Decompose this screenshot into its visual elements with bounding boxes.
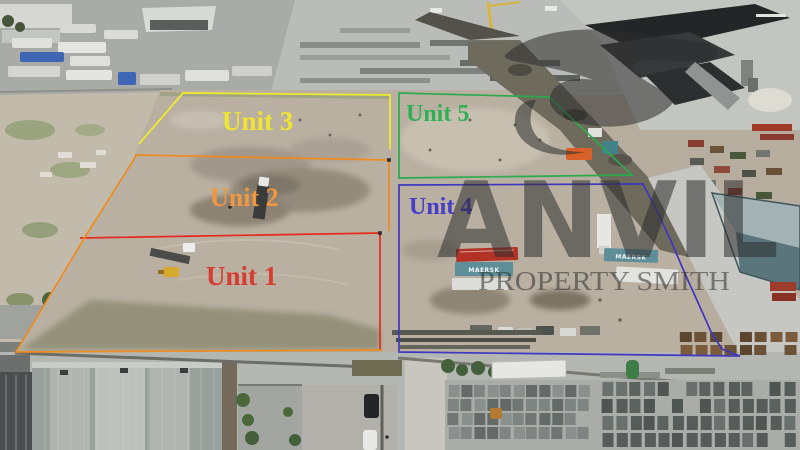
concrete-block xyxy=(696,345,708,355)
concrete-block xyxy=(513,413,524,425)
concrete-block xyxy=(686,382,697,396)
concrete-block xyxy=(578,399,589,411)
concrete-block xyxy=(713,382,724,396)
concrete-block xyxy=(631,416,642,430)
concrete-block xyxy=(729,399,740,413)
concrete-block xyxy=(512,399,523,411)
concrete-block xyxy=(680,332,692,342)
concrete-block xyxy=(475,399,486,411)
concrete-block xyxy=(743,416,754,430)
concrete-block xyxy=(552,413,563,425)
concrete-block xyxy=(742,433,753,447)
concrete-block xyxy=(755,332,767,342)
concrete-block xyxy=(617,399,628,413)
concrete-block xyxy=(462,413,473,425)
concrete-block xyxy=(754,345,766,355)
concrete-block xyxy=(539,385,550,397)
concrete-block xyxy=(500,427,511,439)
concrete-block xyxy=(771,332,783,342)
concrete-block xyxy=(700,399,711,413)
concrete-block xyxy=(785,382,796,396)
concrete-block xyxy=(785,433,796,447)
concrete-block xyxy=(784,416,795,430)
sand-pile xyxy=(748,88,792,112)
concrete-block xyxy=(539,427,550,439)
courtyard xyxy=(236,385,302,450)
bus-depot xyxy=(0,0,295,95)
concrete-block xyxy=(687,433,698,447)
concrete-block xyxy=(449,427,460,439)
site-cabin xyxy=(602,141,618,154)
concrete-block xyxy=(729,416,740,430)
concrete-block xyxy=(514,427,525,439)
warehouse-roof xyxy=(32,362,237,450)
concrete-block xyxy=(500,385,511,397)
concrete-block xyxy=(757,399,768,413)
concrete-block xyxy=(714,399,725,413)
watermark-tagline: PROPERTY SMITH xyxy=(478,266,730,296)
concrete-block xyxy=(786,332,798,342)
watermark-brand: ANVIL xyxy=(437,160,779,282)
unit-label-unit-3: Unit 3 xyxy=(222,106,293,136)
concrete-block xyxy=(474,427,485,439)
concrete-block xyxy=(673,416,684,430)
concrete-block xyxy=(659,433,670,447)
concrete-block xyxy=(539,413,550,425)
concrete-block xyxy=(729,433,740,447)
parking-area xyxy=(302,385,397,450)
concrete-block xyxy=(565,385,576,397)
white-car xyxy=(363,430,377,450)
concrete-block xyxy=(578,427,589,439)
concrete-block xyxy=(645,433,656,447)
concrete-block xyxy=(699,382,710,396)
concrete-block xyxy=(501,413,512,425)
black-car xyxy=(364,394,379,418)
concrete-block xyxy=(757,433,768,447)
concrete-block xyxy=(602,399,613,413)
concrete-block xyxy=(714,416,725,430)
concrete-block xyxy=(617,433,628,447)
concrete-block xyxy=(449,385,460,397)
unit-label-unit-5: Unit 5 xyxy=(406,101,469,127)
concrete-block xyxy=(672,399,683,413)
concrete-block xyxy=(629,399,640,413)
concrete-block xyxy=(602,416,613,430)
concrete-block xyxy=(657,416,668,430)
steel-piles xyxy=(392,330,542,349)
concrete-block xyxy=(701,433,712,447)
concrete-block xyxy=(526,427,537,439)
concrete-block xyxy=(741,382,752,396)
concrete-block xyxy=(566,427,577,439)
concrete-block xyxy=(743,399,754,413)
concrete-block xyxy=(644,399,655,413)
concrete-block xyxy=(602,382,613,396)
concrete-block xyxy=(629,382,640,396)
dark-building xyxy=(0,372,34,450)
white-truck-cab xyxy=(183,243,195,252)
concrete-block xyxy=(681,345,693,355)
concrete-block xyxy=(500,399,511,411)
concrete-block xyxy=(461,385,472,397)
concrete-block xyxy=(701,416,712,430)
concrete-block xyxy=(579,385,590,397)
driveway xyxy=(405,358,447,450)
concrete-block xyxy=(551,427,562,439)
concrete-block xyxy=(729,382,740,396)
aerial-site-photo: MAERSK MAERSK xyxy=(0,0,800,450)
concrete-block xyxy=(461,427,472,439)
concrete-block xyxy=(631,433,642,447)
concrete-block xyxy=(552,399,563,411)
concrete-block xyxy=(756,416,767,430)
concrete-block xyxy=(616,382,627,396)
concrete-block xyxy=(539,399,550,411)
concrete-block xyxy=(603,433,614,447)
concrete-block xyxy=(644,382,655,396)
concrete-block xyxy=(740,332,752,342)
concrete-block xyxy=(769,399,780,413)
corner-marker xyxy=(378,231,382,235)
concrete-block xyxy=(460,399,471,411)
white-canopy xyxy=(492,360,566,379)
concrete-block xyxy=(694,332,706,342)
concrete-block xyxy=(785,399,796,413)
unit-label-unit-2: Unit 2 xyxy=(210,183,279,212)
concrete-block xyxy=(715,433,726,447)
unit-label-unit-1: Unit 1 xyxy=(206,261,277,291)
concrete-block xyxy=(672,433,683,447)
concrete-block xyxy=(488,385,499,397)
concrete-block xyxy=(565,399,576,411)
concrete-block xyxy=(526,385,537,397)
concrete-block xyxy=(553,385,564,397)
concrete-block xyxy=(474,413,485,425)
green-tank xyxy=(626,360,639,379)
concrete-block xyxy=(687,416,698,430)
concrete-block xyxy=(447,413,458,425)
concrete-block xyxy=(644,416,655,430)
concrete-block xyxy=(785,345,797,355)
concrete-block xyxy=(771,416,782,430)
person xyxy=(385,435,389,439)
concrete-block xyxy=(514,385,525,397)
forklift xyxy=(490,408,502,419)
corner-marker xyxy=(387,158,391,162)
concrete-block xyxy=(526,399,537,411)
concrete-block xyxy=(740,345,752,355)
concrete-block xyxy=(658,382,669,396)
concrete-block xyxy=(448,399,459,411)
concrete-block xyxy=(565,413,576,425)
concrete-block xyxy=(525,413,536,425)
concrete-block xyxy=(770,382,781,396)
concrete-block xyxy=(616,416,627,430)
concrete-block xyxy=(487,427,498,439)
concrete-block xyxy=(474,385,485,397)
